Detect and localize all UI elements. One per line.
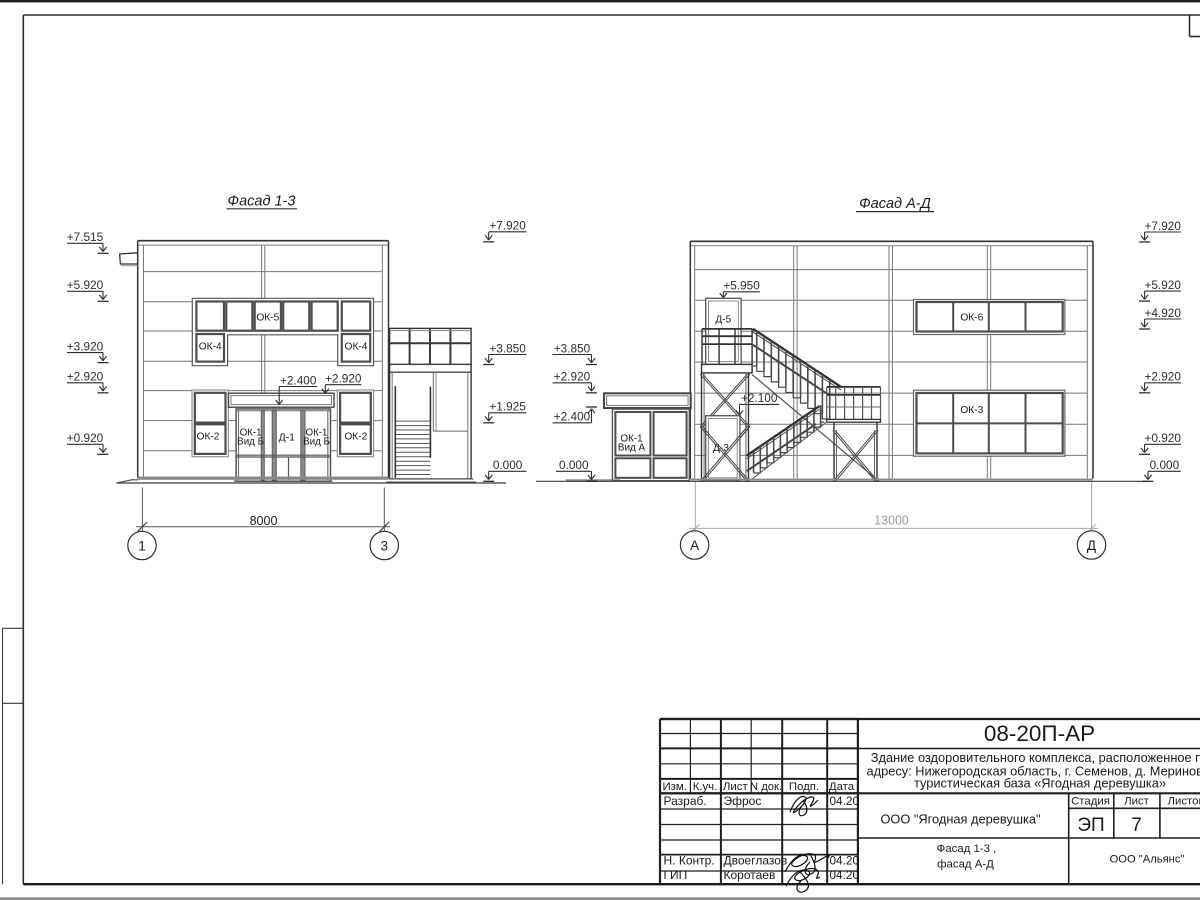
svg-text:08-20П-АР: 08-20П-АР	[984, 721, 1095, 746]
svg-text:Д-1: Д-1	[279, 433, 295, 444]
svg-text:Д-5: Д-5	[715, 315, 731, 326]
svg-text:1: 1	[138, 538, 146, 553]
svg-text:ОК-2: ОК-2	[344, 432, 367, 443]
svg-text:Листов: Листов	[1167, 796, 1200, 808]
svg-text:Подп.: Подп.	[789, 781, 819, 793]
svg-text:Стадия: Стадия	[1071, 796, 1110, 808]
svg-text:0.000: 0.000	[1150, 458, 1180, 472]
svg-text:+2.920: +2.920	[554, 370, 591, 384]
svg-text:N док.: N док.	[750, 781, 782, 793]
svg-text:ОК-4: ОК-4	[199, 341, 222, 352]
svg-text:+2.400: +2.400	[554, 410, 591, 424]
svg-text:ОК-2: ОК-2	[197, 432, 220, 443]
svg-text:+5.920: +5.920	[67, 278, 104, 292]
svg-text:ОК-6: ОК-6	[960, 312, 983, 323]
svg-text:04.20: 04.20	[830, 794, 860, 808]
svg-text:+4.920: +4.920	[1144, 306, 1181, 320]
svg-text:Фасад 1-3 ,: Фасад 1-3 ,	[937, 843, 997, 855]
svg-text:Д: Д	[1087, 538, 1096, 553]
svg-text:ОК-5: ОК-5	[256, 312, 279, 323]
svg-text:+2.400: +2.400	[280, 373, 317, 387]
svg-text:Фасад 1-3: Фасад 1-3	[228, 194, 296, 210]
svg-text:Вид Б: Вид Б	[303, 436, 330, 447]
svg-text:Эфрос: Эфрос	[724, 794, 762, 808]
svg-text:ОК-4: ОК-4	[345, 341, 368, 352]
svg-text:8000: 8000	[250, 514, 278, 528]
svg-text:Фасад А-Д: Фасад А-Д	[859, 196, 931, 212]
svg-text:+7.515: +7.515	[67, 230, 104, 244]
svg-text:+7.920: +7.920	[489, 219, 526, 233]
svg-text:+2.100: +2.100	[741, 391, 778, 405]
svg-text:+3.920: +3.920	[67, 339, 104, 353]
svg-text:+0.920: +0.920	[1144, 431, 1181, 445]
svg-text:+2.920: +2.920	[67, 370, 104, 384]
svg-text:Изм.: Изм.	[662, 781, 686, 793]
svg-text:04.20: 04.20	[830, 853, 860, 867]
svg-text:13000: 13000	[874, 514, 909, 528]
svg-text:+0.920: +0.920	[67, 431, 104, 445]
svg-text:0.000: 0.000	[493, 458, 523, 472]
svg-text:ЭП: ЭП	[1077, 815, 1104, 836]
svg-text:Двоеглазов: Двоеглазов	[724, 853, 788, 867]
svg-text:0.000: 0.000	[559, 458, 589, 472]
svg-text:фасад А-Д: фасад А-Д	[937, 859, 994, 871]
svg-text:ГИП: ГИП	[664, 868, 688, 882]
svg-text:7: 7	[1131, 815, 1142, 836]
svg-text:А: А	[690, 538, 699, 553]
svg-text:ООО "Альянс": ООО "Альянс"	[1110, 854, 1185, 866]
svg-text:+2.920: +2.920	[325, 372, 362, 386]
svg-text:+3.850: +3.850	[554, 341, 591, 355]
svg-text:К.уч.: К.уч.	[693, 781, 718, 793]
svg-text:ОК-3: ОК-3	[960, 405, 983, 416]
svg-text:Лист: Лист	[723, 781, 749, 793]
svg-text:Вид Б: Вид Б	[237, 436, 264, 447]
svg-text:+3.850: +3.850	[489, 341, 526, 355]
svg-text:Разраб.: Разраб.	[664, 794, 707, 808]
svg-text:туристическая база «Ягодная де: туристическая база «Ягодная деревушка»	[914, 775, 1166, 790]
svg-text:Коротаев: Коротаев	[724, 868, 776, 882]
svg-text:+7.920: +7.920	[1144, 219, 1181, 233]
svg-text:+1.925: +1.925	[489, 400, 526, 414]
svg-text:Вид А: Вид А	[618, 442, 646, 453]
svg-text:3: 3	[381, 538, 389, 553]
svg-text:Н. Контр.: Н. Контр.	[664, 853, 715, 867]
svg-text:+2.920: +2.920	[1144, 370, 1181, 384]
svg-text:+5.920: +5.920	[1144, 278, 1181, 292]
svg-text:Лист: Лист	[1124, 796, 1150, 808]
svg-text:04.20: 04.20	[830, 868, 860, 882]
svg-text:+5.950: +5.950	[723, 279, 760, 293]
svg-text:Дата: Дата	[829, 781, 855, 793]
svg-text:ООО "Ягодная деревушка": ООО "Ягодная деревушка"	[880, 812, 1040, 827]
